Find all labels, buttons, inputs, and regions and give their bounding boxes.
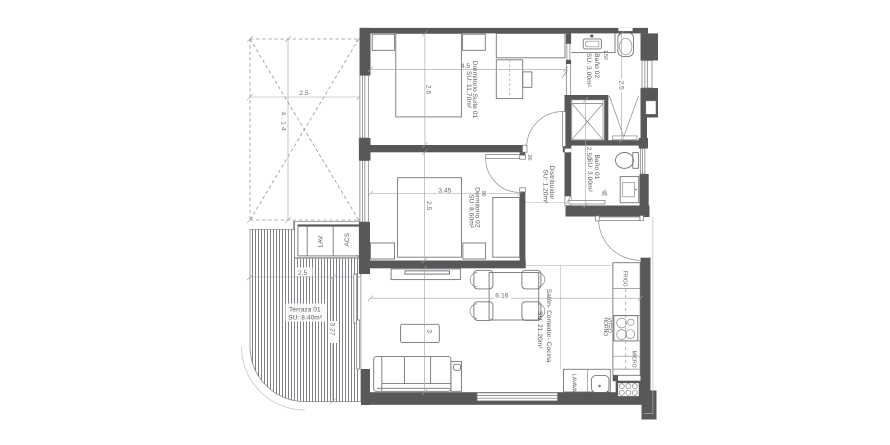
svg-text:.36: .36 [601,192,608,198]
svg-text:2.5: 2.5 [425,201,432,211]
svg-text:6.16: 6.16 [495,293,508,300]
svg-text:SU: 11,70m²: SU: 11,70m² [465,71,472,109]
svg-text:2.5: 2.5 [299,90,309,97]
svg-text:2.5: 2.5 [298,270,308,277]
svg-text:SU: 8.40m²: SU: 8.40m² [288,314,323,321]
svg-text:4.5: 4.5 [461,63,471,70]
svg-text:3.27: 3.27 [328,323,335,336]
svg-text:3.45: 3.45 [438,187,451,194]
svg-text:Terraza 01: Terraza 01 [289,306,321,313]
svg-text:FRIGO: FRIGO [622,271,628,287]
svg-text:Baño 02: Baño 02 [593,53,600,78]
svg-text:ACS: ACS [344,232,351,246]
svg-text:HORNO: HORNO [602,318,608,337]
svg-text:3: 3 [425,329,432,333]
svg-text:2.6: 2.6 [424,85,431,95]
svg-text:Baño 01: Baño 01 [593,155,600,180]
svg-text:SU: 1.20m²: SU: 1.20m² [541,170,548,205]
svg-text:SU: 8.60m²: SU: 8.60m² [467,194,474,229]
svg-text:SU: 21.20m²: SU: 21.20m² [536,311,543,349]
svg-text:1.50: 1.50 [602,50,608,60]
svg-text:4.14: 4.14 [280,112,287,133]
svg-text:SU: 3.00m²: SU: 3.00m² [586,158,593,193]
svg-text:2.5: 2.5 [617,81,624,91]
svg-text:LAVAVAJ.: LAVAVAJ. [571,374,577,396]
svg-text:.90: .90 [480,190,486,197]
svg-text:.90: .90 [526,154,532,161]
svg-text:LAV.: LAV. [318,234,325,248]
svg-text:Salón- Comedor- Cocina: Salón- Comedor- Cocina [545,289,552,363]
svg-text:MICRO: MICRO [631,351,637,368]
svg-text:SU: 3.00m²: SU: 3.00m² [585,53,592,88]
